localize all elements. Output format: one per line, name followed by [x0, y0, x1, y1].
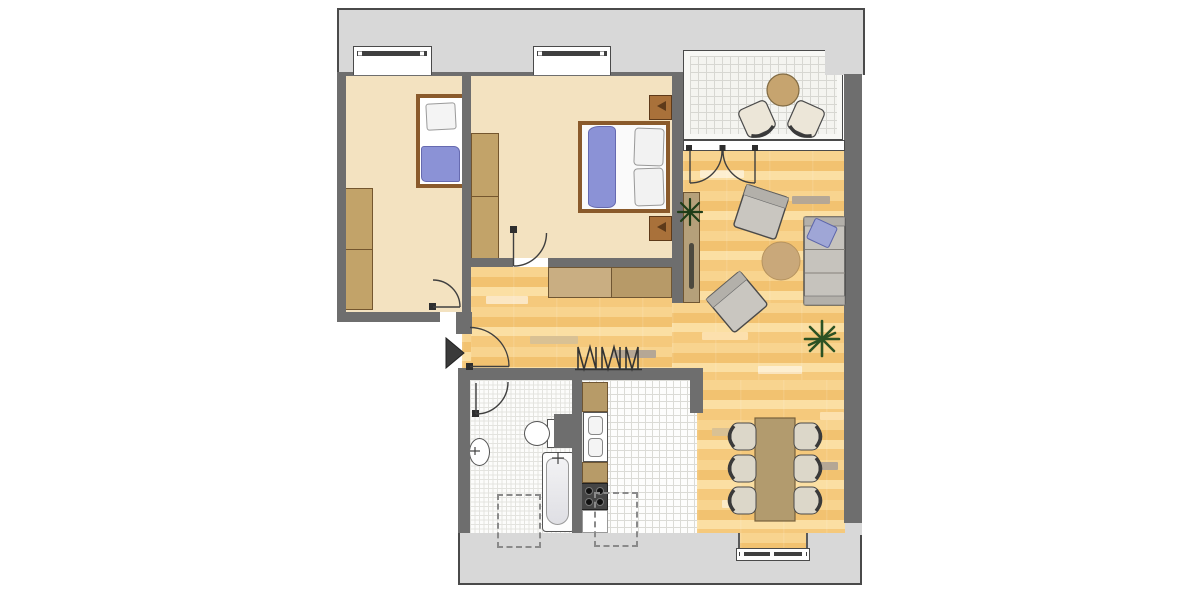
window-bar-bedroom2 — [537, 52, 607, 56]
floor-plan — [0, 0, 1200, 600]
door-balcony-right — [720, 145, 759, 183]
balcony-chair — [785, 99, 825, 140]
dining-chairs-right — [794, 423, 821, 514]
bathtub-tap-icon — [552, 452, 564, 464]
door-bathroom — [472, 382, 508, 417]
armchair — [706, 271, 768, 333]
plant-living-room — [805, 321, 839, 356]
sofa — [804, 217, 845, 305]
door-entry — [466, 328, 509, 371]
armchair — [733, 184, 788, 239]
symbol-overlay — [0, 0, 1200, 600]
entrance-arrow-icon — [446, 338, 464, 368]
window-bar-bedroom1 — [357, 52, 427, 56]
dining-table — [755, 418, 795, 521]
door-bedroom2 — [510, 226, 547, 266]
coat-rack-icon — [575, 347, 642, 370]
nightstand-lamp-icon — [657, 101, 666, 111]
round-rug — [762, 242, 800, 280]
balcony-table — [767, 74, 799, 106]
nightstand-lamp-icon — [657, 222, 666, 232]
door-bedroom1 — [429, 280, 460, 310]
window-bar-dining — [739, 552, 807, 556]
door-balcony-left — [686, 145, 722, 183]
dining-chairs-left — [730, 423, 757, 514]
plant-on-cabinet — [678, 199, 702, 225]
balcony-chair — [737, 99, 777, 140]
basin-tap-icon — [470, 447, 480, 455]
